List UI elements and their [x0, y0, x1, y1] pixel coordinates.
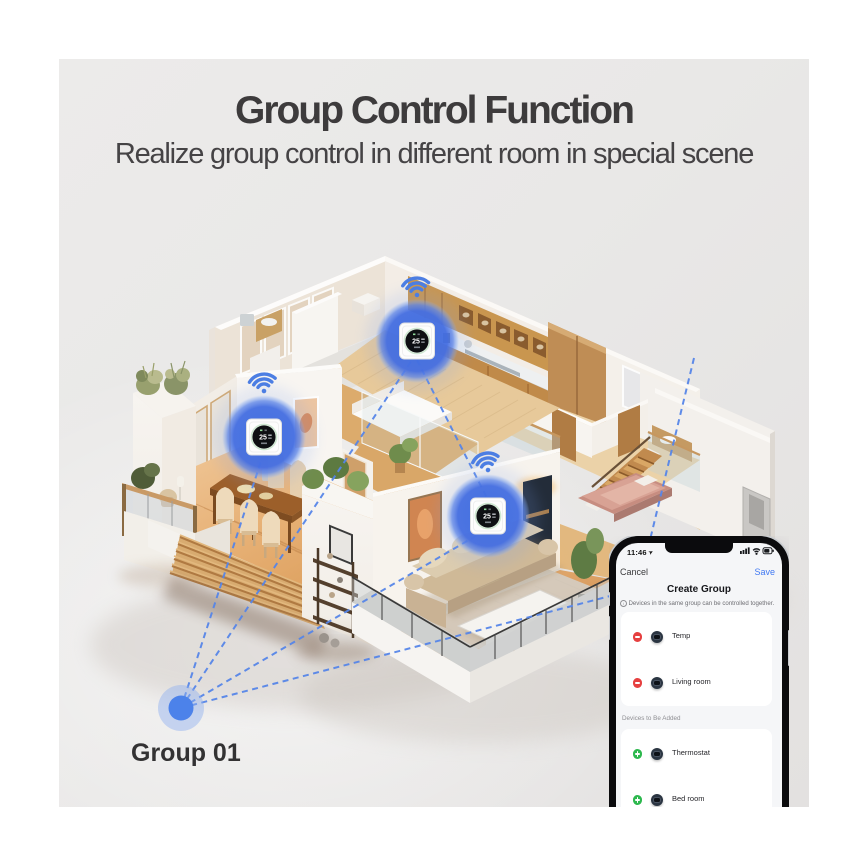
svg-text:25: 25	[412, 339, 420, 346]
svg-text:25: 25	[259, 435, 267, 442]
svg-text:25: 25	[483, 514, 491, 521]
